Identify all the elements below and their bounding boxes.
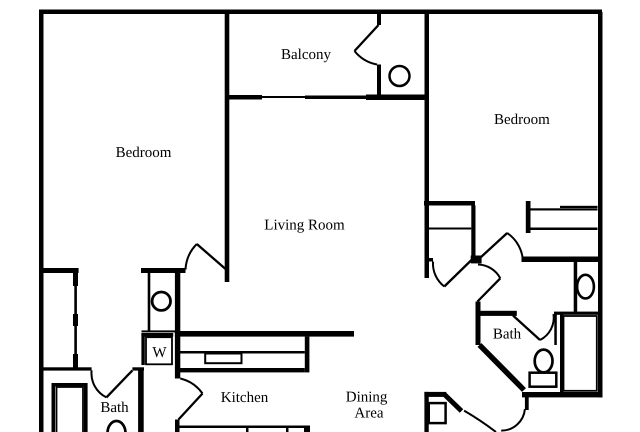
svg-text:Dining: Dining bbox=[346, 390, 388, 406]
svg-text:Balcony: Balcony bbox=[281, 47, 331, 63]
svg-text:Bedroom: Bedroom bbox=[494, 112, 550, 128]
svg-text:Area: Area bbox=[354, 406, 383, 422]
svg-text:Bath: Bath bbox=[493, 327, 522, 343]
svg-text:Bath: Bath bbox=[100, 400, 129, 416]
svg-text:Bedroom: Bedroom bbox=[116, 145, 172, 161]
svg-text:W: W bbox=[152, 345, 167, 361]
svg-text:Living Room: Living Room bbox=[264, 218, 345, 234]
svg-text:Kitchen: Kitchen bbox=[221, 390, 269, 406]
